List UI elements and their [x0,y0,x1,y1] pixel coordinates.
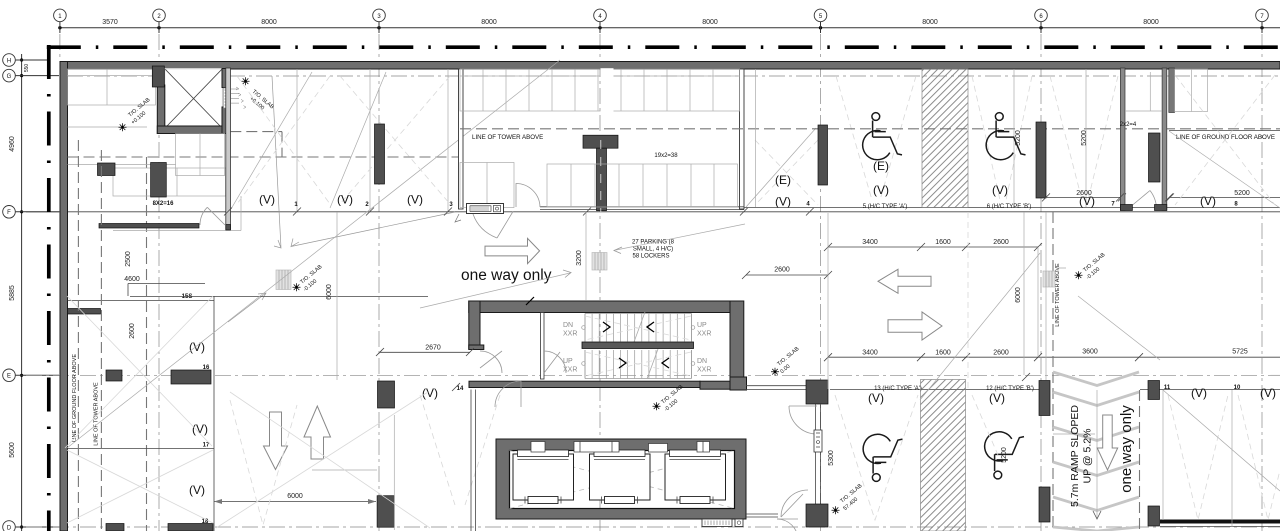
svg-text:17: 17 [203,443,210,449]
svg-text:14: 14 [457,386,464,392]
svg-text:DN: DN [697,358,707,365]
svg-text:(V): (V) [775,195,791,209]
svg-text:3200: 3200 [576,250,583,266]
svg-text:UP: UP [697,322,707,329]
svg-text:DN: DN [563,322,573,329]
svg-text:5725: 5725 [1232,349,1248,356]
svg-text:UP @ 5.2%: UP @ 5.2% [1082,429,1094,484]
svg-text:58 LOCKERS: 58 LOCKERS [632,254,669,260]
svg-text:(E): (E) [775,173,791,187]
svg-text:(V): (V) [992,183,1008,197]
svg-text:XXR: XXR [563,331,577,338]
svg-text:(V): (V) [189,483,205,497]
svg-text:2670: 2670 [425,345,441,352]
svg-text:5300: 5300 [828,450,835,466]
svg-text:SMALL, 4 H/C): SMALL, 4 H/C) [633,247,673,253]
svg-text:(V): (V) [337,193,353,207]
svg-text:3400: 3400 [862,350,878,357]
svg-text:5600: 5600 [9,442,16,458]
svg-text:2600: 2600 [993,350,1009,357]
svg-text:8000: 8000 [1143,19,1159,26]
svg-text:1600: 1600 [935,350,951,357]
svg-text:10: 10 [1234,385,1241,391]
svg-text:8000: 8000 [481,19,497,26]
svg-text:5 (H/C TYPE 'A'): 5 (H/C TYPE 'A') [863,204,908,210]
svg-text:15S: 15S [182,294,193,300]
svg-text:LINE OF TOWER ABOVE: LINE OF TOWER ABOVE [472,134,543,141]
svg-text:4600: 4600 [124,276,140,283]
svg-text:2600: 2600 [129,323,136,339]
svg-text:2600: 2600 [1076,190,1092,197]
svg-text:5200: 5200 [1234,190,1250,197]
svg-text:(V): (V) [1260,386,1276,400]
svg-text:D: D [7,525,12,531]
svg-text:(V): (V) [989,391,1005,405]
svg-text:8000: 8000 [261,19,277,26]
svg-text:(V): (V) [259,193,275,207]
svg-text:5.7m RAMP SLOPED: 5.7m RAMP SLOPED [1069,405,1081,507]
svg-text:E: E [7,374,11,380]
svg-text:3570: 3570 [102,19,118,26]
svg-text:8000: 8000 [922,19,938,26]
svg-text:(V): (V) [1191,386,1207,400]
svg-text:H: H [7,58,11,64]
svg-text:1600: 1600 [935,239,951,246]
svg-text:XXR: XXR [697,331,711,338]
svg-text:F: F [7,210,11,216]
svg-text:6 (H/C TYPE 'B'): 6 (H/C TYPE 'B') [987,204,1032,210]
svg-text:3600: 3600 [1082,349,1098,356]
svg-text:8000: 8000 [702,19,718,26]
svg-text:2500: 2500 [125,251,132,267]
svg-text:(V): (V) [189,340,205,354]
svg-text:2600: 2600 [774,267,790,274]
svg-text:2600: 2600 [993,239,1009,246]
svg-text:6000: 6000 [287,493,303,500]
svg-text:5885: 5885 [9,285,16,301]
svg-text:(E): (E) [873,159,889,173]
svg-text:G: G [7,74,12,80]
svg-text:LINE OF GROUND FLOOR ABOVE: LINE OF GROUND FLOOR ABOVE [72,354,78,442]
svg-text:(V): (V) [422,386,438,400]
svg-text:6000: 6000 [1015,287,1022,303]
svg-text:550: 550 [24,64,30,73]
svg-text:(V): (V) [407,193,423,207]
svg-text:5200: 5200 [1001,447,1008,463]
svg-text:XXR: XXR [697,367,711,374]
svg-text:4960: 4960 [9,136,16,152]
svg-text:one way only: one way only [1118,405,1135,493]
svg-text:6000: 6000 [326,284,333,300]
svg-text:5200: 5200 [1015,130,1022,146]
svg-text:11: 11 [1164,385,1171,391]
svg-text:8X2=16: 8X2=16 [153,201,175,207]
svg-text:5200: 5200 [1081,130,1088,146]
svg-text:19x2=38: 19x2=38 [654,153,678,159]
svg-text:3400: 3400 [862,239,878,246]
svg-text:2x2=4: 2x2=4 [1120,122,1137,128]
svg-text:(V): (V) [868,391,884,405]
svg-text:one way only: one way only [461,267,552,284]
svg-text:(V): (V) [1200,194,1216,208]
svg-text:(V): (V) [873,183,889,197]
